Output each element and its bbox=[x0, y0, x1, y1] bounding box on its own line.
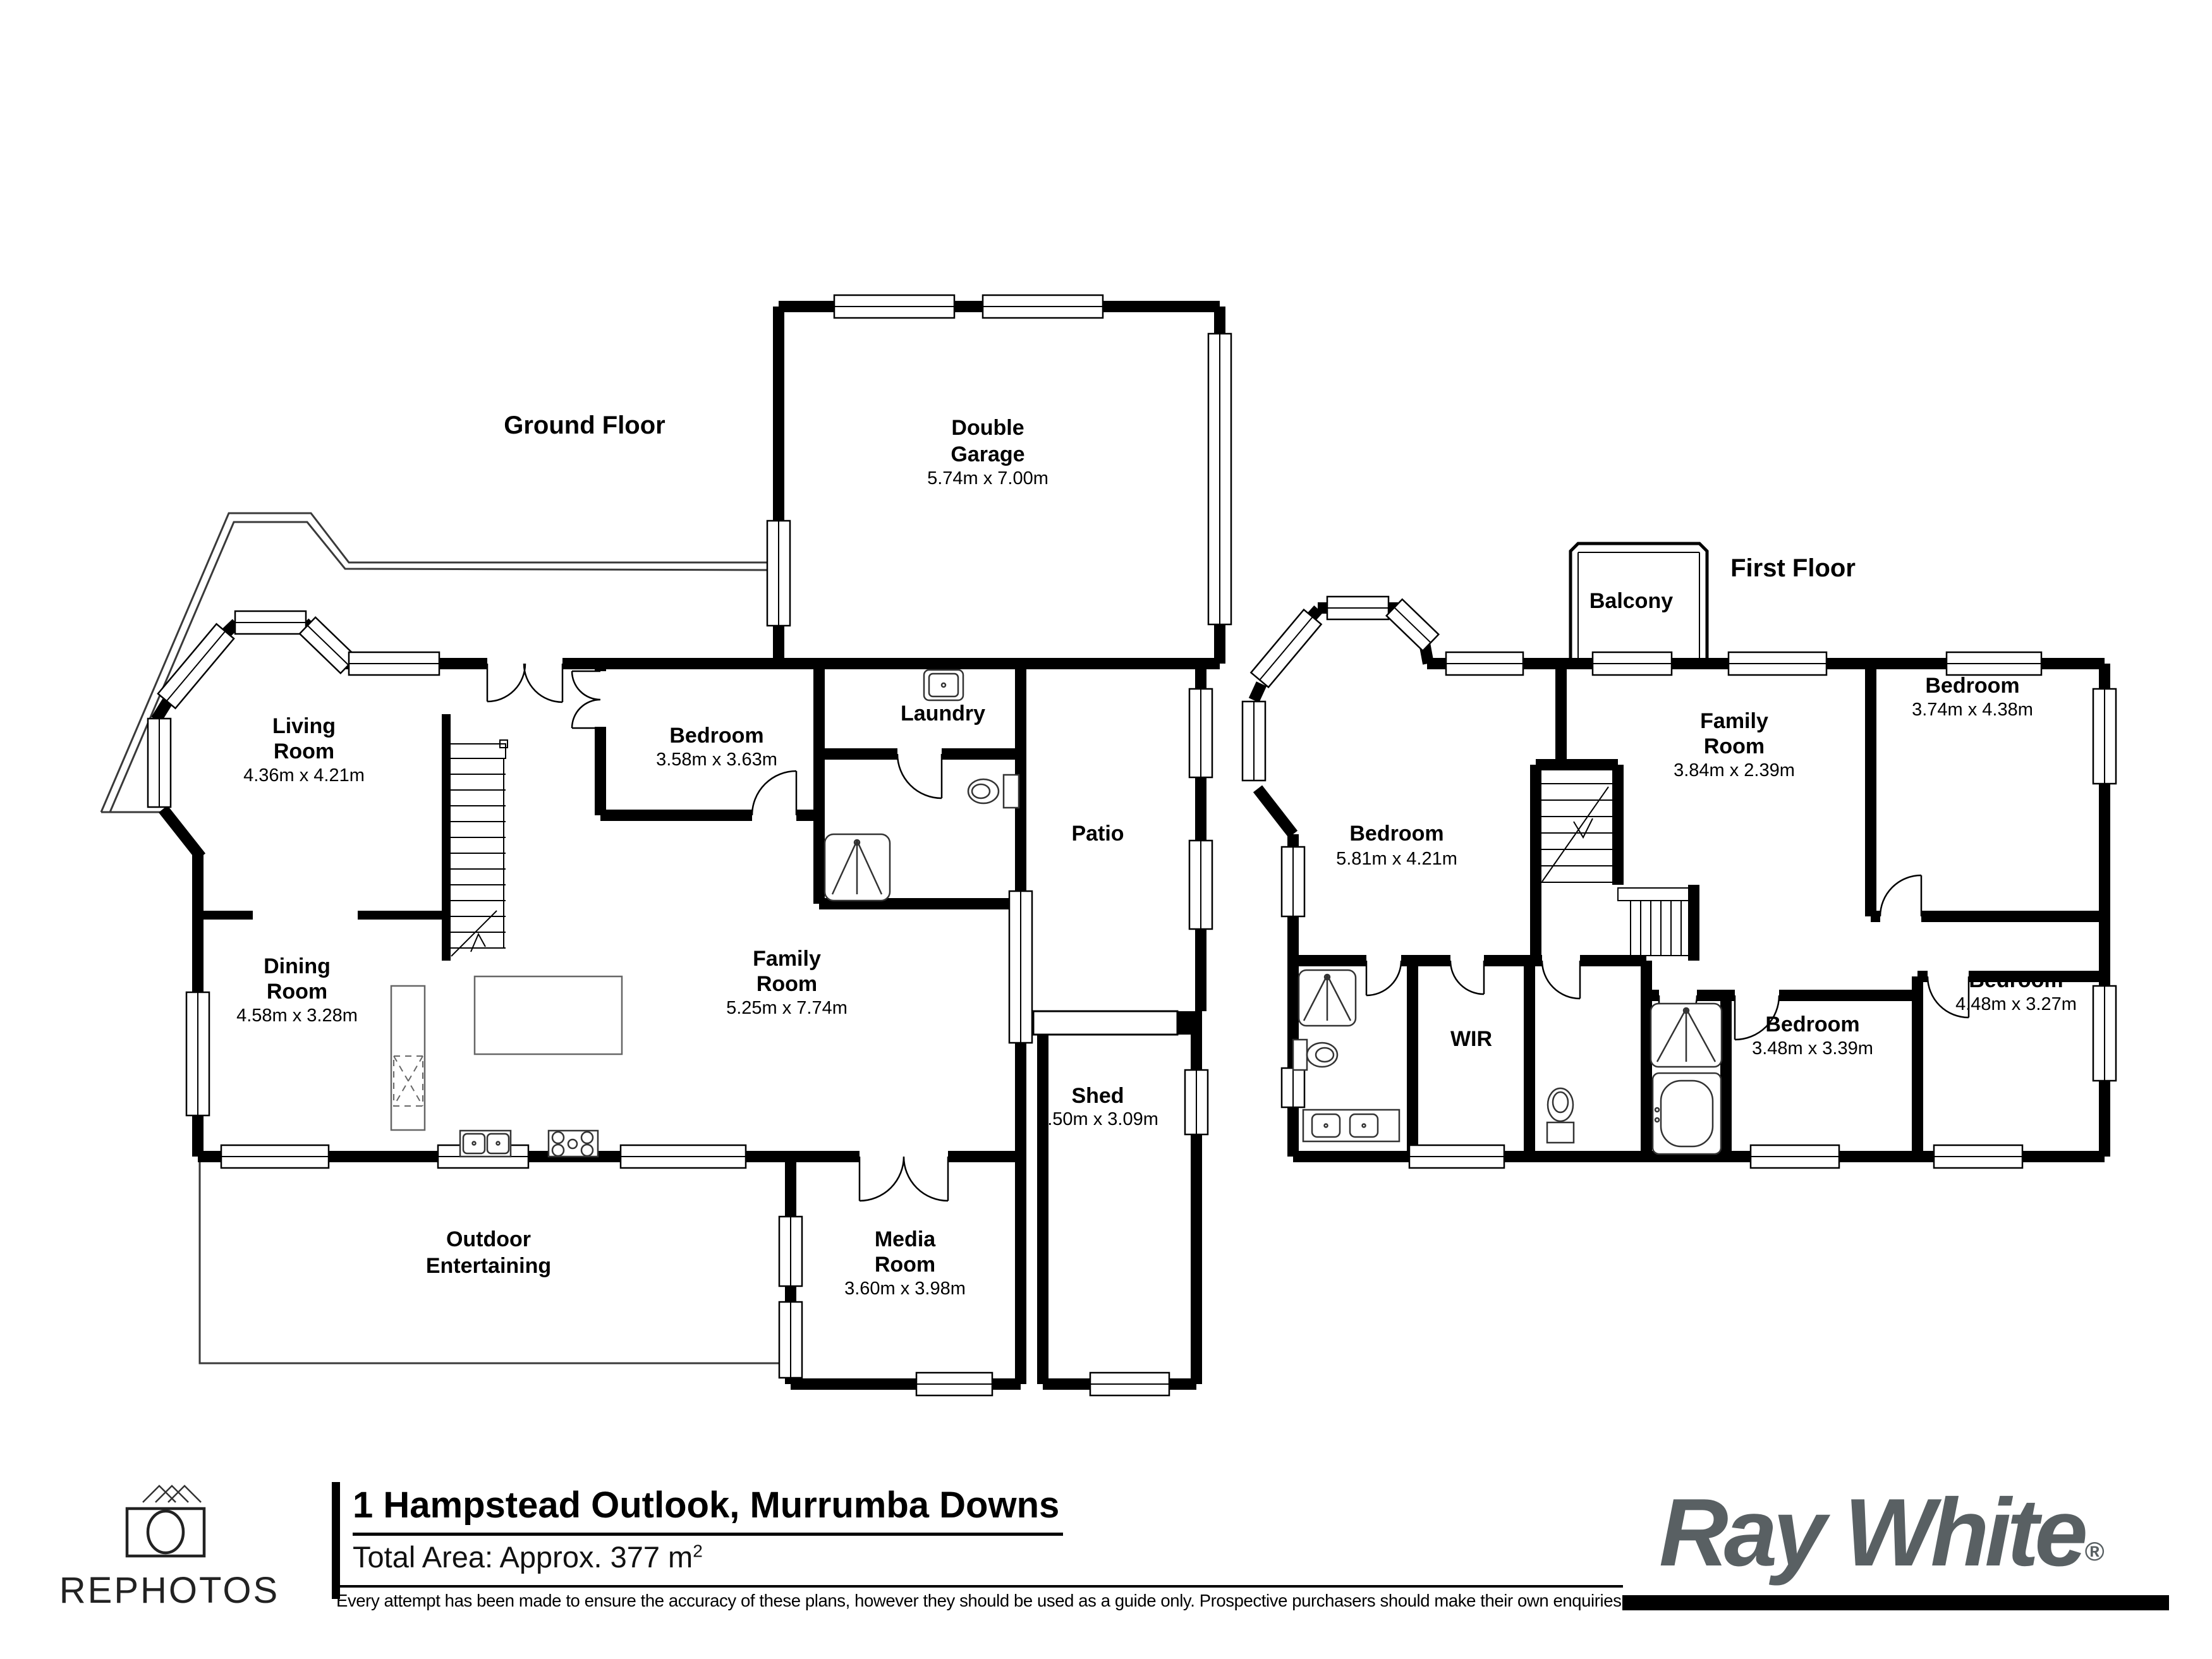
ff-front-window-2 bbox=[1729, 652, 1826, 675]
balcony-door-window bbox=[1593, 652, 1672, 675]
master-bedroom-dims: 5.81m x 4.21m bbox=[1336, 849, 1457, 869]
bedroom-topright-dims: 3.74m x 4.38m bbox=[1912, 700, 2033, 720]
ground-floor-title: Ground Floor bbox=[504, 411, 665, 439]
ground-family-label-2: Room bbox=[757, 972, 817, 996]
rephotos-house-camera-icon bbox=[127, 1486, 204, 1556]
laundry-tub bbox=[924, 670, 963, 700]
shed-dims: 4.50m x 3.09m bbox=[1037, 1109, 1158, 1129]
media-window-3 bbox=[916, 1373, 992, 1395]
garage-label-1: Double bbox=[951, 416, 1024, 440]
ff-left-window-2 bbox=[1282, 1068, 1304, 1107]
ensuite-door bbox=[1366, 961, 1401, 995]
ground-stairs bbox=[450, 740, 507, 956]
dining-label-1: Dining bbox=[264, 954, 331, 978]
front-window bbox=[349, 652, 439, 675]
ray-white-wordmark: Ray White bbox=[1659, 1479, 2084, 1586]
bay-window-diag-right bbox=[300, 617, 356, 673]
kitchen-window-2 bbox=[621, 1145, 746, 1168]
media-label-1: Media bbox=[875, 1227, 936, 1251]
ff-rear-window-3 bbox=[1934, 1145, 2022, 1168]
ff-rear-window-1 bbox=[1409, 1145, 1504, 1168]
bedroom-french-doors bbox=[572, 671, 600, 728]
ff-bay-window-diag-left bbox=[1251, 610, 1321, 688]
garage-window-2 bbox=[983, 295, 1103, 318]
first-floor-plan: First Floor Balcony Bedroom 5.81m x 4.21… bbox=[1243, 544, 2116, 1168]
ff-bay-window-diag-right bbox=[1387, 599, 1439, 650]
rephotos-logo: REPHOTOS bbox=[51, 1473, 316, 1659]
master-bedroom-label: Bedroom bbox=[1349, 822, 1443, 846]
dining-dims: 4.58m x 3.28m bbox=[236, 1006, 358, 1026]
ground-walls bbox=[156, 307, 1220, 1384]
ff-bath bbox=[1653, 1073, 1721, 1154]
bedroom-mid-label: Bedroom bbox=[1765, 1012, 1859, 1036]
ff-family-label-1: Family bbox=[1700, 709, 1768, 733]
ensuite-toilet bbox=[1293, 1040, 1337, 1070]
outdoor-label-2: Entertaining bbox=[426, 1254, 551, 1278]
ensuite-vanity bbox=[1303, 1110, 1399, 1141]
rephotos-wordmark: REPHOTOS bbox=[59, 1570, 279, 1611]
patio-shed-sill bbox=[1033, 1011, 1177, 1035]
media-double-doors bbox=[860, 1157, 948, 1201]
bedroom-bottomright-label: Bedroom bbox=[1969, 968, 2063, 992]
balcony-label: Balcony bbox=[1589, 589, 1673, 613]
floorplan-canvas: Ground Floor Double Garage 5.74m x 7.00m… bbox=[0, 0, 2212, 1473]
footer-divider-bar bbox=[332, 1482, 340, 1599]
media-label-2: Room bbox=[875, 1253, 935, 1277]
wir-door bbox=[1450, 961, 1484, 994]
ground-toilet bbox=[968, 775, 1019, 808]
disclaimer-text: Every attempt has been made to ensure th… bbox=[336, 1585, 1623, 1611]
ray-white-logo: Ray White® bbox=[1659, 1478, 2103, 1588]
shed-window bbox=[1185, 1070, 1208, 1134]
patio-label: Patio bbox=[1071, 822, 1124, 846]
bay-window-diag-left bbox=[158, 624, 234, 708]
ff-left-window-1 bbox=[1282, 847, 1304, 916]
kitchen-sink bbox=[460, 1131, 511, 1157]
ground-family-dims: 5.25m x 7.74m bbox=[726, 998, 848, 1018]
living-label-1: Living bbox=[272, 714, 336, 738]
ground-bedroom-label: Bedroom bbox=[669, 724, 763, 748]
media-dims: 3.60m x 3.98m bbox=[844, 1279, 966, 1299]
rear-window-1 bbox=[221, 1145, 329, 1168]
pantry bbox=[394, 1056, 423, 1106]
shed-wall-stub bbox=[1177, 1011, 1202, 1035]
garage-door bbox=[1208, 334, 1231, 624]
garage-side-window bbox=[767, 521, 790, 626]
cooktop bbox=[549, 1131, 598, 1157]
ff-right-window-2 bbox=[2093, 986, 2116, 1081]
shed-label: Shed bbox=[1071, 1084, 1124, 1108]
total-area: Total Area: Approx. 377 m2 bbox=[353, 1540, 703, 1574]
ff-family-label-2: Room bbox=[1704, 734, 1765, 758]
family-patio-window bbox=[1009, 891, 1032, 1043]
wc-toilet bbox=[1547, 1088, 1574, 1143]
living-label-2: Room bbox=[274, 739, 334, 763]
garage-dims: 5.74m x 7.00m bbox=[927, 468, 1048, 489]
total-area-text: Total Area: Approx. 377 m bbox=[353, 1540, 693, 1574]
registered-trademark-symbol: ® bbox=[2085, 1536, 2105, 1566]
bay-window-top bbox=[235, 611, 306, 634]
bay-window-left bbox=[148, 719, 171, 807]
wir-label: WIR bbox=[1450, 1027, 1492, 1051]
living-dims: 4.36m x 4.21m bbox=[243, 765, 365, 786]
ground-floor-plan: Ground Floor Double Garage 5.74m x 7.00m… bbox=[101, 295, 1231, 1395]
kitchen-counter bbox=[391, 986, 425, 1130]
first-floor-title: First Floor bbox=[1730, 554, 1856, 582]
ff-bay-window-top bbox=[1327, 597, 1389, 619]
ff-shower bbox=[1651, 1004, 1722, 1067]
bedroom-bottomright-dims: 4.48m x 3.27m bbox=[1955, 994, 2077, 1014]
footer-black-bar bbox=[1622, 1595, 2169, 1610]
outdoor-label-1: Outdoor bbox=[446, 1227, 531, 1251]
garage-label-2: Garage bbox=[951, 442, 1024, 466]
ff-right-window-1 bbox=[2093, 689, 2116, 784]
property-address: 1 Hampstead Outlook, Murrumba Downs bbox=[353, 1484, 1063, 1536]
shed-door bbox=[1090, 1373, 1169, 1395]
ff-family-dims: 3.84m x 2.39m bbox=[1674, 760, 1795, 781]
bedroom-door bbox=[752, 771, 796, 815]
bathroom-door bbox=[897, 754, 942, 798]
garage-window-1 bbox=[834, 295, 954, 318]
ground-family-label-1: Family bbox=[753, 947, 821, 971]
dining-label-2: Room bbox=[267, 980, 327, 1004]
laundry-label: Laundry bbox=[901, 702, 985, 726]
ff-front-window-1 bbox=[1446, 652, 1523, 675]
dining-window bbox=[186, 992, 209, 1115]
media-window-1 bbox=[779, 1217, 802, 1286]
wc-door bbox=[1542, 961, 1580, 999]
entry-double-door bbox=[487, 664, 562, 702]
ff-bay-window-left bbox=[1243, 702, 1265, 781]
media-window-2 bbox=[779, 1302, 802, 1378]
bedroom-topright-label: Bedroom bbox=[1925, 674, 2019, 698]
ff-rear-window-2 bbox=[1751, 1145, 1839, 1168]
floorplan-page: Ground Floor Double Garage 5.74m x 7.00m… bbox=[0, 0, 2212, 1659]
total-area-superscript: 2 bbox=[693, 1541, 703, 1560]
patio-window-1 bbox=[1189, 689, 1212, 777]
ff-front-window-3 bbox=[1947, 652, 2041, 675]
ground-bedroom-dims: 3.58m x 3.63m bbox=[656, 750, 777, 770]
kitchen-island bbox=[475, 976, 622, 1054]
ensuite-shower bbox=[1299, 970, 1356, 1026]
kitchen bbox=[391, 976, 622, 1157]
ground-shower bbox=[825, 834, 890, 901]
bedroom-mid-dims: 3.48m x 3.39m bbox=[1752, 1038, 1873, 1059]
patio-window-2 bbox=[1189, 841, 1212, 929]
bedroom-topright-door bbox=[1880, 875, 1921, 916]
